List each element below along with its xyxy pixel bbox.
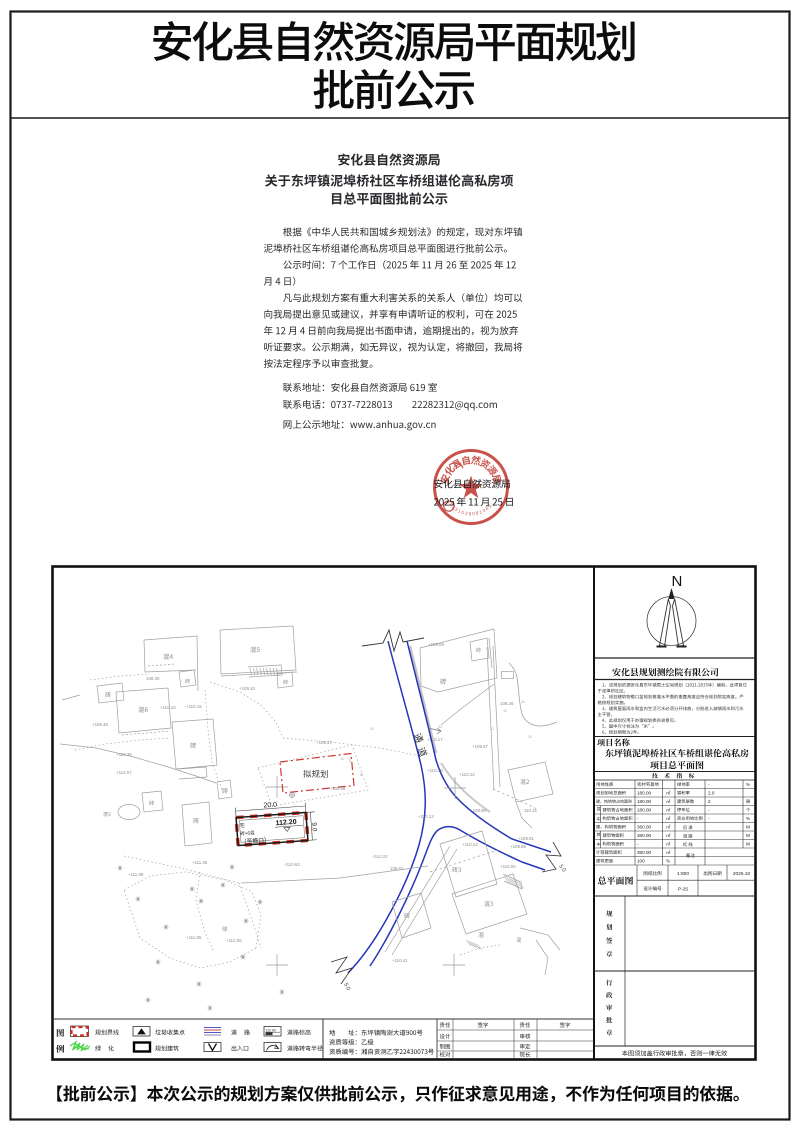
svg-text:+108.85: +108.85 [510,844,527,849]
svg-text:%: % [746,816,750,821]
svg-text:+110.63: +110.63 [284,862,300,867]
svg-text:108.40: 108.40 [146,676,160,681]
svg-text:+110.22: +110.22 [372,854,388,859]
svg-text:M: M [746,833,750,838]
svg-text:100: 100 [637,858,645,863]
svg-text:+110.10: +110.10 [160,705,176,710]
svg-text:+110.12: +110.12 [418,814,434,819]
svg-text:360.00: 360.00 [637,824,651,829]
svg-text:P-25: P-25 [678,886,688,892]
svg-text:+110.00: +110.00 [500,864,516,869]
svg-text:+108.59: +108.59 [330,786,346,791]
svg-text:20.0: 20.0 [263,802,277,810]
svg-text:+110.17: +110.17 [427,737,443,742]
svg-text:+109.59: +109.59 [428,642,445,647]
svg-text:2: 2 [708,799,711,804]
svg-text:M: M [746,841,750,846]
svg-text:112.00: 112.00 [266,1029,276,1033]
svg-text:+109.90: +109.90 [470,808,487,813]
svg-text:180.00: 180.00 [637,807,651,812]
svg-text:360.00: 360.00 [637,850,651,855]
svg-text:N: N [672,573,683,590]
svg-text:108.26: 108.26 [500,701,514,706]
svg-text:%: % [746,782,750,787]
svg-text:+110.12: +110.12 [459,772,475,777]
svg-text:180.00: 180.00 [637,790,651,795]
svg-text:2.0: 2.0 [708,790,715,795]
svg-text:+110.39: +110.39 [116,752,132,757]
svg-text:+108.47: +108.47 [316,740,333,745]
svg-text:+111.06: +111.06 [186,935,202,940]
svg-text:+108.45: +108.45 [92,722,109,727]
svg-text:360.00: 360.00 [637,833,651,838]
svg-text:+112.06: +112.06 [226,938,242,943]
svg-text:+111.09: +111.09 [128,872,144,877]
svg-text:+109.81: +109.81 [518,836,535,841]
svg-text:+110.15: +110.15 [186,704,202,709]
svg-text:+110.41: +110.41 [392,958,408,963]
svg-text:M: M [746,824,750,829]
svg-text:+110.18: +110.18 [427,768,443,773]
svg-text:9.0: 9.0 [310,822,318,832]
svg-text:180.00: 180.00 [637,799,651,804]
svg-text:110.41: 110.41 [524,808,538,813]
svg-text:+110.14: +110.14 [462,842,478,847]
svg-text:2025.10: 2025.10 [733,871,751,877]
svg-text:+109.10: +109.10 [239,686,256,691]
svg-text:1:800: 1:800 [677,871,689,877]
svg-text:+109.47: +109.47 [472,744,489,749]
svg-text:+112.07: +112.07 [116,770,132,775]
svg-text:+111.06: +111.06 [192,860,208,865]
